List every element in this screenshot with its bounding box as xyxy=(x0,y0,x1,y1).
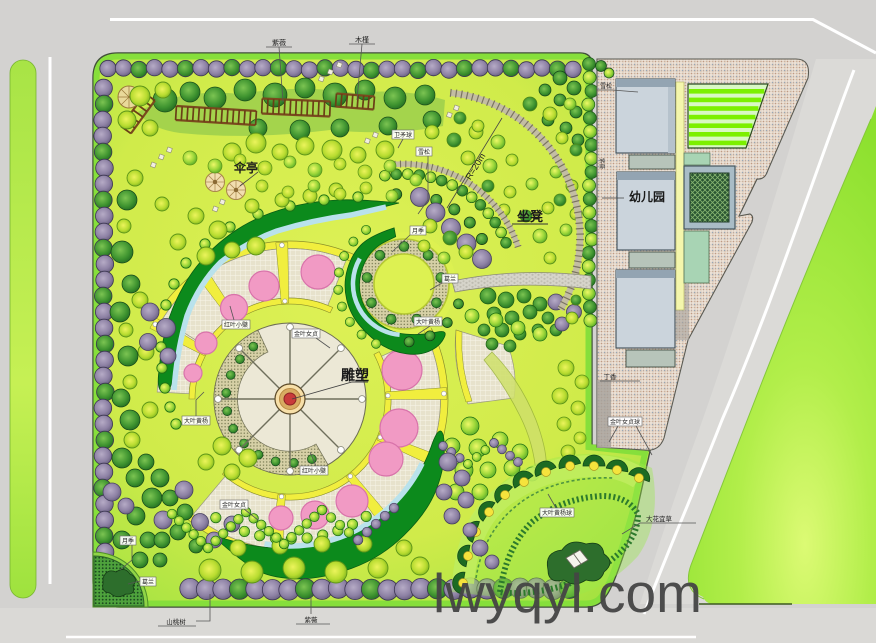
svg-text:大叶黄杨球: 大叶黄杨球 xyxy=(542,509,572,517)
svg-text:木槿: 木槿 xyxy=(355,35,369,44)
svg-text:紫薇: 紫薇 xyxy=(305,615,319,624)
svg-text:坐凳: 坐凳 xyxy=(517,209,544,224)
svg-text:金叶女贞球: 金叶女贞球 xyxy=(610,418,640,426)
svg-text:月季: 月季 xyxy=(412,227,424,235)
svg-text:紫薇: 紫薇 xyxy=(598,158,606,170)
svg-text:大叶黄杨: 大叶黄杨 xyxy=(184,417,208,425)
svg-text:幼儿园: 幼儿园 xyxy=(629,189,665,204)
svg-text:大叶黄杨: 大叶黄杨 xyxy=(416,318,440,326)
svg-text:丁香: 丁香 xyxy=(604,372,618,381)
svg-text:卫矛球: 卫矛球 xyxy=(394,131,412,139)
svg-text:lwyqyl.com: lwyqyl.com xyxy=(433,562,702,624)
svg-text:伞亭: 伞亭 xyxy=(233,160,258,175)
svg-text:金叶女贞: 金叶女贞 xyxy=(294,330,318,338)
svg-text:紫薇: 紫薇 xyxy=(272,38,286,47)
svg-text:金叶女贞: 金叶女贞 xyxy=(222,501,246,509)
svg-text:葛兰: 葛兰 xyxy=(444,275,456,283)
svg-text:雪松: 雪松 xyxy=(418,148,430,156)
svg-text:月季: 月季 xyxy=(122,537,134,545)
svg-text:红叶小檗: 红叶小檗 xyxy=(224,321,248,329)
svg-text:大花宜草: 大花宜草 xyxy=(646,514,673,523)
svg-text:雕塑: 雕塑 xyxy=(341,367,369,383)
svg-text:雪松: 雪松 xyxy=(600,82,612,90)
svg-text:山桃树: 山桃树 xyxy=(166,617,186,626)
svg-text:红叶小檗: 红叶小檗 xyxy=(302,467,326,475)
svg-text:葛兰: 葛兰 xyxy=(142,578,154,586)
